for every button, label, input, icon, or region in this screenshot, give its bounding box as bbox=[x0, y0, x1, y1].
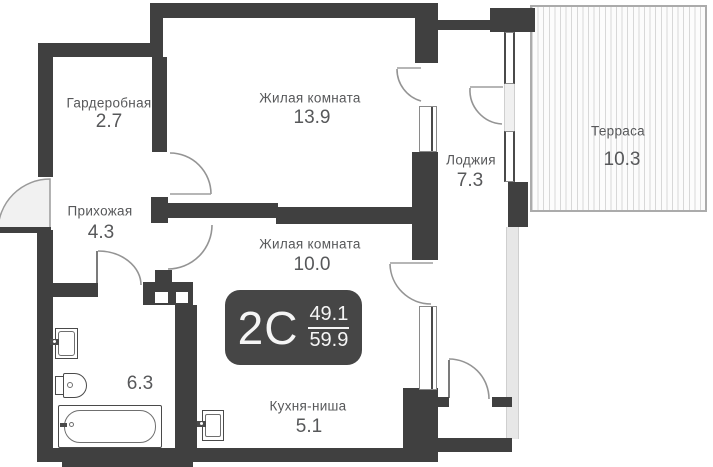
wall-bottom-step bbox=[62, 461, 193, 467]
room1-door-arc bbox=[170, 153, 211, 194]
room-area-wardrobe: 2.7 bbox=[96, 111, 122, 133]
room-area-kitchen-niche: 5.1 bbox=[296, 416, 322, 438]
shaft-notch bbox=[155, 292, 168, 303]
bathtub-icon bbox=[58, 405, 162, 448]
window-mullion bbox=[431, 107, 433, 151]
room-label-living-room-1: Жилая комната bbox=[259, 91, 360, 106]
window-room1-loggia bbox=[419, 106, 437, 152]
room-area-loggia: 7.3 bbox=[457, 170, 483, 192]
terrace-door-opening bbox=[504, 84, 515, 133]
wall-rooms-divider-left bbox=[168, 203, 278, 218]
wall-rooms-divider-right bbox=[276, 207, 413, 224]
apartment-type-badge: 2С 49.1 59.9 bbox=[225, 290, 362, 365]
apartment-area-total: 59.9 bbox=[309, 329, 348, 352]
wall-terrace-corner-block bbox=[490, 8, 535, 32]
room-area-living-room-2: 10.0 bbox=[294, 254, 331, 276]
toilet-flush-dot bbox=[67, 382, 73, 388]
entrance-door-arc bbox=[0, 179, 50, 231]
wall-bathroom-right bbox=[175, 305, 197, 452]
wall-bathroom-top bbox=[38, 283, 98, 297]
washbasin-basin bbox=[58, 331, 75, 356]
room-label-kitchen-niche: Кухня-ниша bbox=[270, 399, 347, 414]
apartment-area-fraction: 49.1 59.9 bbox=[308, 303, 349, 352]
loggia-door2-arc bbox=[390, 264, 431, 304]
room-area-terrace: 10.3 bbox=[604, 149, 641, 171]
loggia-door1-arc bbox=[397, 69, 421, 101]
apartment-area-living: 49.1 bbox=[308, 303, 349, 329]
bathroom-door-arc bbox=[98, 251, 141, 285]
window-loggia-right-lower bbox=[504, 131, 515, 182]
apartment-type-label: 2С bbox=[238, 305, 299, 351]
wall-left-exterior-lower bbox=[37, 230, 53, 462]
wall-loggia-bottom bbox=[438, 438, 512, 452]
wall-loggia-divider-right bbox=[492, 397, 512, 407]
loggia-lower-door-arc bbox=[449, 359, 489, 399]
loggia-glazing-band bbox=[506, 227, 519, 439]
room-label-hallway: Прихожая bbox=[68, 204, 133, 219]
window-kitchen-loggia bbox=[419, 306, 437, 390]
room-area-hallway: 4.3 bbox=[88, 222, 114, 244]
window-mullion bbox=[431, 307, 433, 389]
wall-hall-junction bbox=[151, 197, 168, 223]
room-label-loggia: Лоджия bbox=[446, 153, 496, 168]
wall-left-exterior-upper bbox=[38, 43, 53, 177]
terrace-area bbox=[530, 5, 707, 212]
wall-top-exterior bbox=[150, 3, 415, 18]
bathtub-tap-icon bbox=[60, 423, 67, 427]
hallway-door-arc bbox=[168, 225, 212, 269]
bathtub-tap-dot bbox=[69, 422, 74, 427]
bathtub-basin bbox=[64, 410, 156, 443]
floor-plan: Гардеробная 2.7 Жилая комната 13.9 Лоджи… bbox=[0, 0, 713, 467]
wall-bottom-exterior bbox=[37, 448, 407, 462]
kitchen-tap-dot bbox=[200, 422, 203, 425]
room-label-living-room-2: Жилая комната bbox=[259, 237, 360, 252]
room-label-terrace: Терраса bbox=[591, 124, 645, 139]
wall-kitchen-window-block bbox=[403, 388, 438, 462]
shaft-notch bbox=[176, 292, 188, 303]
wall-loggia-right-block bbox=[508, 182, 528, 227]
room-label-wardrobe: Гардеробная bbox=[67, 96, 152, 111]
wall-wardrobe-top bbox=[38, 43, 163, 57]
wall-loggia-left-block bbox=[412, 152, 438, 260]
wall-loggia-top-block bbox=[415, 3, 438, 63]
window-loggia-right-upper bbox=[504, 32, 515, 84]
room-area-living-room-1: 13.9 bbox=[294, 107, 331, 129]
kitchen-sink-basin bbox=[205, 414, 221, 437]
terrace-door-arc bbox=[470, 88, 502, 124]
wall-wardrobe-right bbox=[152, 57, 167, 152]
washbasin-tap-dot bbox=[53, 340, 56, 343]
wall-loggia-divider-left bbox=[438, 397, 449, 407]
room-area-bathroom: 6.3 bbox=[127, 373, 153, 395]
